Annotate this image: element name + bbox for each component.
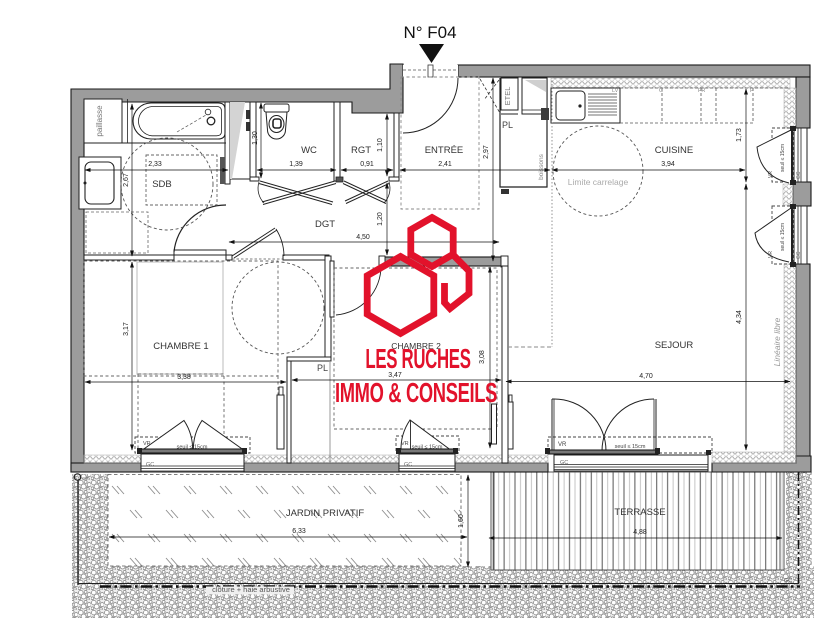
svg-text:Linéaire libre: Linéaire libre [772,317,782,366]
svg-text:2,67: 2,67 [123,173,130,187]
svg-text:1,73: 1,73 [736,128,743,142]
svg-text:CHAMBRE 1: CHAMBRE 1 [153,341,208,352]
svg-text:1,10: 1,10 [377,138,384,152]
svg-text:0,91: 0,91 [360,161,374,168]
svg-text:N° F04: N° F04 [403,23,456,42]
svg-text:PL: PL [502,120,513,130]
svg-text:VR: VR [143,441,151,447]
svg-text:SDB: SDB [152,179,172,190]
svg-text:6,33: 6,33 [292,528,306,535]
svg-text:JARDIN PRIVATIF: JARDIN PRIVATIF [286,508,364,519]
svg-text:PL: PL [317,363,328,373]
svg-text:3,38: 3,38 [177,374,191,381]
svg-text:2,41: 2,41 [438,161,452,168]
svg-text:LV: LV [612,88,619,94]
svg-text:VR: VR [768,251,774,258]
svg-text:SEJOUR: SEJOUR [655,340,694,351]
svg-text:4,70: 4,70 [639,373,653,380]
svg-text:2,33: 2,33 [148,161,162,168]
svg-text:GC: GC [784,578,792,584]
svg-text:GC: GC [796,251,802,259]
svg-text:GC: GC [146,462,154,468]
svg-text:seuil ≤ 15cm: seuil ≤ 15cm [780,223,786,251]
svg-text:VR: VR [558,442,567,448]
svg-text:Limite carrelage: Limite carrelage [568,177,629,187]
svg-text:IMMO & CONSEILS: IMMO & CONSEILS [335,378,497,409]
svg-text:TERRASSE: TERRASSE [614,507,665,518]
svg-text:3,08: 3,08 [479,350,486,364]
svg-text:4,50: 4,50 [356,234,370,241]
svg-text:GC: GC [560,460,568,466]
svg-text:ETEL: ETEL [503,87,512,106]
svg-text:1,60: 1,60 [458,514,465,528]
svg-text:1,39: 1,39 [289,161,303,168]
svg-text:WC: WC [301,145,317,156]
svg-text:VR: VR [768,171,774,178]
svg-text:boissons: boissons [538,153,545,179]
svg-text:CP: CP [82,476,88,481]
svg-text:3,17: 3,17 [123,322,130,336]
svg-text:GC: GC [796,171,802,179]
svg-text:4,88: 4,88 [633,529,647,536]
svg-text:clôture + haie arbustive: clôture + haie arbustive [212,585,290,594]
svg-text:2,97: 2,97 [483,145,490,159]
svg-text:CUISINE: CUISINE [655,145,694,156]
svg-text:GC: GC [404,462,412,468]
svg-text:seuil ≤ 15cm: seuil ≤ 15cm [615,444,646,450]
svg-text:FR: FR [698,88,705,94]
svg-text:4,34: 4,34 [736,310,743,324]
svg-text:3,94: 3,94 [661,161,675,168]
svg-text:ENTRÉE: ENTRÉE [425,145,464,156]
svg-text:C: C [659,88,663,94]
svg-text:DGT: DGT [315,219,335,230]
svg-text:VR: VR [401,441,409,447]
svg-text:1,20: 1,20 [377,212,384,226]
svg-text:RGT: RGT [351,145,371,156]
svg-text:LES RUCHES: LES RUCHES [365,343,470,375]
svg-text:paillasse: paillasse [95,105,104,137]
svg-text:1,30: 1,30 [252,131,259,145]
svg-text:seuil ≤ 15cm: seuil ≤ 15cm [780,144,786,172]
